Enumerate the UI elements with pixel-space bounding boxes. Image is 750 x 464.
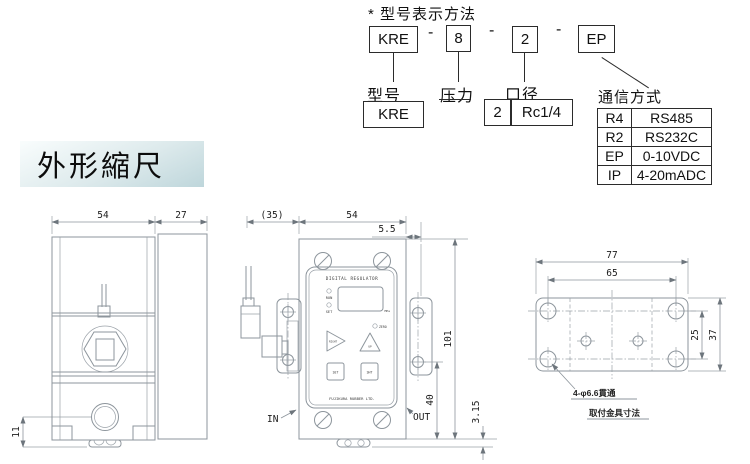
code-box-pressure: 8	[446, 25, 471, 52]
section-header-dimensions: 外形縮尺	[20, 141, 204, 187]
bracket-dimension-lines	[536, 258, 726, 371]
dim-bracket-height: 37	[708, 329, 719, 340]
dim-plate-height: 101	[443, 330, 454, 347]
comm-value: 4-20mADC	[632, 166, 712, 185]
regulator-panel: DIGITAL REGULATOR RUN SET MPa ZERO RIGHT…	[306, 267, 397, 408]
dim-flange: 5.5	[378, 224, 395, 235]
code-separator: -	[489, 22, 494, 40]
label-pressure: 压力	[440, 82, 474, 106]
btn-shift-label: SHT	[367, 371, 373, 375]
dim-hole-pitch: 25	[690, 329, 701, 340]
front-view-dimension-lines	[247, 216, 497, 460]
btn-up-label: UP	[368, 345, 372, 349]
label-comm-method: 通信方式	[598, 86, 662, 107]
bracket-caption: 取付金具寸法	[589, 408, 641, 418]
connector-line	[393, 53, 394, 82]
comm-value: RS232C	[632, 128, 712, 147]
unit-label: MPa	[385, 309, 391, 313]
cable-connector	[241, 266, 288, 357]
run-led-icon	[327, 289, 331, 293]
zero-led-icon	[373, 324, 377, 328]
dim-plate-width: 54	[346, 210, 358, 221]
comm-value: RS485	[632, 109, 712, 128]
comm-value: 0-10VDC	[632, 147, 712, 166]
table-row: EP 0-10VDC	[598, 147, 712, 166]
bore-size-cell: Rc1/4	[510, 99, 573, 126]
dim-port-height: 11	[11, 426, 22, 438]
comm-code: EP	[598, 147, 632, 166]
model-code-title: * 型号表示方法	[368, 3, 476, 24]
dim-bracket-offset: (35)	[261, 210, 284, 221]
set-led-icon	[327, 303, 331, 307]
out-leader-line	[407, 408, 413, 414]
bore-value-box: 2 Rc1/4	[484, 99, 573, 126]
catalog-page: * 型号表示方法 KRE - 8 - 2 - EP 型号 压力 口径 通信方式 …	[0, 0, 750, 464]
port-in-label: IN	[267, 414, 279, 425]
panel-brand: FUJIKURA RUBBER LTD.	[329, 396, 375, 401]
panel-display	[338, 287, 383, 311]
bracket-view-drawing: 77 65 25 37 4-φ6.6貫通 取付金具寸法	[525, 240, 750, 440]
right-mounting-bracket	[410, 292, 432, 381]
front-view-drawing: (35) 54 5.5 101 40 3.15	[215, 200, 515, 464]
corner-screw-icon	[374, 412, 391, 429]
connector-line	[524, 53, 525, 82]
led-zero-label: ZERO	[379, 325, 387, 329]
table-row: R2 RS232C	[598, 128, 712, 147]
hole-leader-line	[552, 364, 575, 389]
table-row: R4 RS485	[598, 109, 712, 128]
panel-title: DIGITAL REGULATOR	[326, 276, 378, 282]
btn-right-label: RIGHT	[329, 340, 337, 344]
code-box-model: KRE	[369, 26, 418, 53]
led-run-label: RUN	[326, 296, 333, 300]
port-out-label: OUT	[413, 412, 430, 423]
connector-line	[458, 52, 459, 82]
dim-foot: 3.15	[471, 401, 482, 424]
corner-screw-icon	[315, 412, 332, 429]
hole-note: 4-φ6.6貫通	[573, 388, 616, 398]
code-box-comm: EP	[578, 25, 615, 53]
side-view-body-outline	[52, 234, 207, 447]
comm-code: R2	[598, 128, 632, 147]
dim-out-height: 40	[425, 394, 436, 406]
bore-code-cell: 2	[484, 99, 511, 126]
connector-line-diagonal	[601, 57, 649, 88]
comm-method-table: R4 RS485 R2 RS232C EP 0-10VDC IP 4-20mAD…	[597, 108, 712, 185]
dim-body-depth: 27	[175, 210, 186, 221]
pressure-underline	[439, 99, 471, 100]
code-box-bore: 2	[512, 26, 538, 53]
comm-code: R4	[598, 109, 632, 128]
in-leader-line	[281, 410, 296, 418]
dim-body-width: 54	[97, 210, 109, 221]
dim-bracket-width: 77	[606, 250, 617, 261]
led-set-label: SET	[326, 310, 333, 314]
code-separator: -	[556, 21, 561, 39]
code-separator: -	[428, 24, 433, 42]
dim-hole-span: 65	[606, 268, 617, 279]
btn-set-label: SET	[333, 371, 339, 375]
model-value-box: KRE	[363, 101, 424, 128]
table-row: IP 4-20mADC	[598, 166, 712, 185]
side-view-drawing: 54 27 11	[10, 200, 220, 464]
comm-code: IP	[598, 166, 632, 185]
